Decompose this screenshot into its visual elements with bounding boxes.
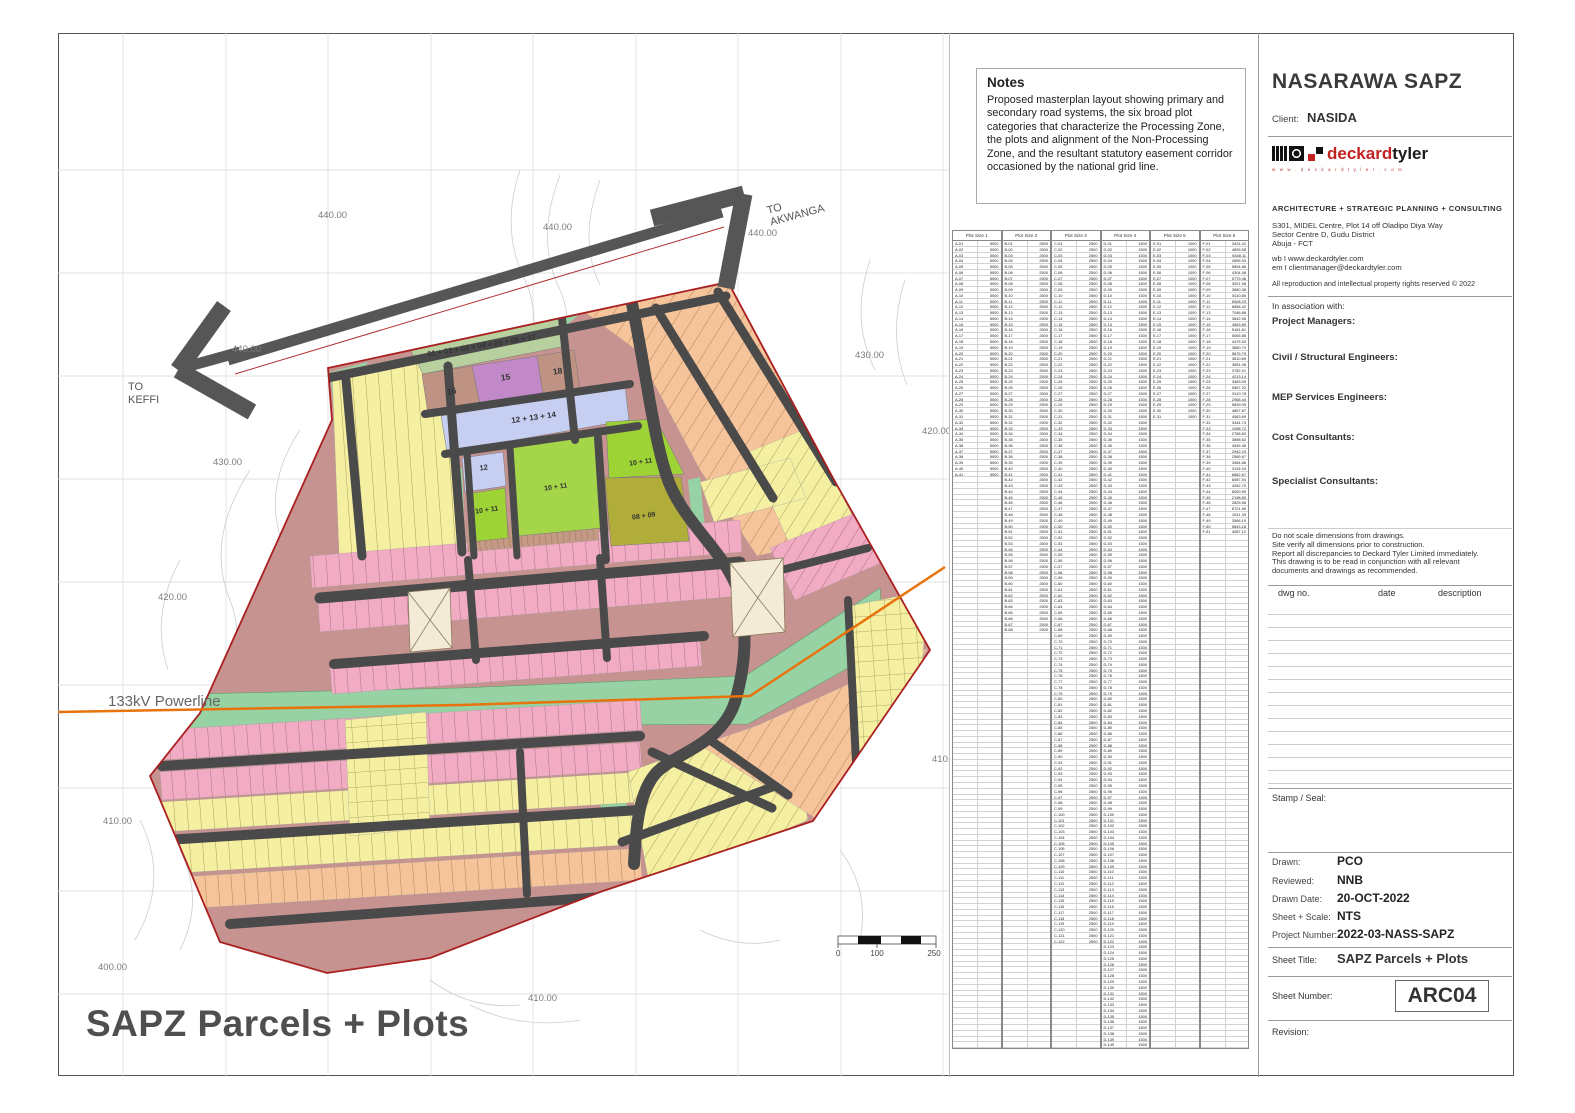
contour-label: 440.00 [543,222,572,233]
sheet-scale-value: NTS [1337,909,1361,923]
plot-size-column: Plot Size 6F-013424.42F-024805.58F-03634… [1200,230,1250,1049]
contour-label: 430.00 [855,350,884,361]
sheet-title-value: SAPZ Parcels + Plots [1337,951,1468,966]
logo-black-square-icon [1316,147,1323,154]
email-line: em I clientmanager@deckardtyler.com [1272,263,1402,272]
address-block: S301, MIDEL Centre, Plot 14 off Oladipo … [1272,221,1443,248]
logo-wordmark: deckardtyler [1327,144,1428,164]
contour-label: 410.00 [103,816,132,827]
reviewed-value: NNB [1337,873,1363,887]
role-mep-services: MEP Services Engineers: [1272,392,1387,403]
scale-tick-100: 100 [870,949,884,958]
scale-tick-0: 0 [836,949,841,958]
parcel-label: 15 [500,371,511,382]
plot-size-column-header: Plot Size 2 [1003,231,1051,241]
divider [1268,296,1512,297]
plot-row [1052,1042,1100,1048]
contour-label: 420.00 [922,426,949,437]
plot-size-column: Plot Size 3C-012500C-022500C-032500C-042… [1051,230,1101,1049]
map-table-divider [949,33,950,1077]
client-label: Client: [1272,114,1299,125]
powerline-label: 133kV Powerline [108,693,221,710]
divider [1268,1020,1512,1021]
divider [1268,852,1512,853]
revision-label: Revision: [1272,1027,1309,1037]
sheet-title-label: Sheet Title: [1272,955,1317,965]
contact-block: wb I www.deckardtyler.com em I clientman… [1272,254,1402,272]
disclaimer-block: Do not scale dimensions from drawings. S… [1272,532,1478,576]
plot-row [1151,1042,1199,1048]
reviewed-label: Reviewed: [1272,876,1314,886]
plot-size-column-header: Plot Size 3 [1052,231,1100,241]
role-civil-structural: Civil / Structural Engineers: [1272,352,1398,363]
contour-label: 420.00 [158,592,187,603]
contour-label: 440.00 [232,344,261,355]
revision-col-description: description [1438,588,1482,598]
project-number-label: Project Number: [1272,930,1337,940]
client-name: NASIDA [1307,110,1357,125]
revision-col-date: date [1378,588,1396,598]
parcel-label: 12 [479,462,489,472]
plot-size-column-header: Plot Size 5 [1151,231,1199,241]
notes-body: Proposed masterplan layout showing prima… [987,94,1239,174]
logo-mark-icon [1272,146,1287,161]
drawn-value: PCO [1337,854,1363,868]
drawn-date-label: Drawn Date: [1272,894,1322,904]
map-big-title: SAPZ Parcels + Plots [86,1003,469,1044]
sheet-number-value: ARC04 [1395,980,1489,1012]
sheet-number-label: Sheet Number: [1272,991,1333,1001]
divider [1268,788,1512,789]
contour-label: 440.00 [748,228,777,239]
contour-label: 430.00 [213,457,242,468]
divider [1268,136,1512,137]
plot-row [953,1042,1001,1048]
stamp-seal-label: Stamp / Seal: [1272,793,1326,803]
drawn-date-value: 20-OCT-2022 [1337,891,1410,905]
sheet-scale-label: Sheet + Scale: [1272,912,1331,922]
divider [1268,585,1512,586]
plot-size-column-header: Plot Size 1 [953,231,1001,241]
drawn-label: Drawn: [1272,857,1301,867]
contour-label: 410.00 [528,993,557,1004]
revision-table-rows [1268,602,1512,787]
divider [1268,528,1512,529]
divider [1268,947,1512,948]
role-specialist-consultants: Specialist Consultants: [1272,476,1378,487]
divider [1268,976,1512,977]
table-titleblock-divider [1258,33,1259,1077]
logo-seal-icon [1289,146,1304,161]
role-cost-consultants: Cost Consultants: [1272,432,1355,443]
logo-brand-red: deckard [1327,144,1392,163]
scale-tick-250: 250 [927,949,941,958]
contour-label: 410.00 [932,754,949,765]
plot-size-column: Plot Size 1A-015000A-025000A-035000A-045… [952,230,1002,1049]
to-keffi-label: KEFFI [128,394,159,406]
rights-line: All reproduction and intellectual proper… [1272,279,1475,288]
logo-brand-black: tyler [1392,144,1428,163]
plot-row [1003,1042,1051,1048]
parcel-label: 18 [552,365,563,376]
notes-box: Notes Proposed masterplan layout showing… [976,68,1246,204]
address-line: Sector Centre D, Gudu District [1272,230,1443,239]
logo-red-square-icon [1308,154,1315,161]
project-number-value: 2022-03-NASS-SAPZ [1337,927,1454,941]
website-line: wb I www.deckardtyler.com [1272,254,1402,263]
address-line: Abuja - FCT [1272,239,1443,248]
plot-size-column-header: Plot Size 6 [1201,231,1249,241]
association-label: In association with: [1272,301,1345,311]
plot-size-table: Plot Size 1A-015000A-025000A-035000A-045… [952,230,1249,1049]
plot-size-column-header: Plot Size 4 [1102,231,1150,241]
masterplan-map: 440.00 440.00 440.00 440.00 430.00 430.0… [58,33,949,1077]
services-line: ARCHITECTURE + STRATEGIC PLANNING + CONS… [1272,204,1502,213]
role-project-managers: Project Managers: [1272,316,1355,327]
plot-size-column: Plot Size 2B-012500B-022500B-032500B-042… [1002,230,1052,1049]
scale-bar: 0 100 250 [836,936,941,958]
notes-title: Notes [987,75,1235,90]
plot-row: D-1401500 [1102,1042,1150,1048]
contour-label: 440.00 [318,210,347,221]
disclaimer-line: documents and drawings as recommended. [1272,567,1478,576]
plot-size-column: Plot Size 4D-011500D-021500D-031500D-041… [1101,230,1151,1049]
address-line: S301, MIDEL Centre, Plot 14 off Oladipo … [1272,221,1443,230]
to-keffi-label: TO [128,381,144,393]
plot-row [1201,1042,1249,1048]
parcel-label: 16 [446,385,457,396]
drawing-sheet: 440.00 440.00 440.00 440.00 430.00 430.0… [0,0,1575,1113]
contour-label: 400.00 [98,962,127,973]
project-title: NASARAWA SAPZ [1272,70,1462,94]
revision-col-dwg: dwg no. [1278,588,1310,598]
logo-tagline: w w w . d e c k a r d t y l e r . c o m [1272,167,1403,172]
plot-size-column: Plot Size 5E-011000E-021000E-031000E-041… [1150,230,1200,1049]
